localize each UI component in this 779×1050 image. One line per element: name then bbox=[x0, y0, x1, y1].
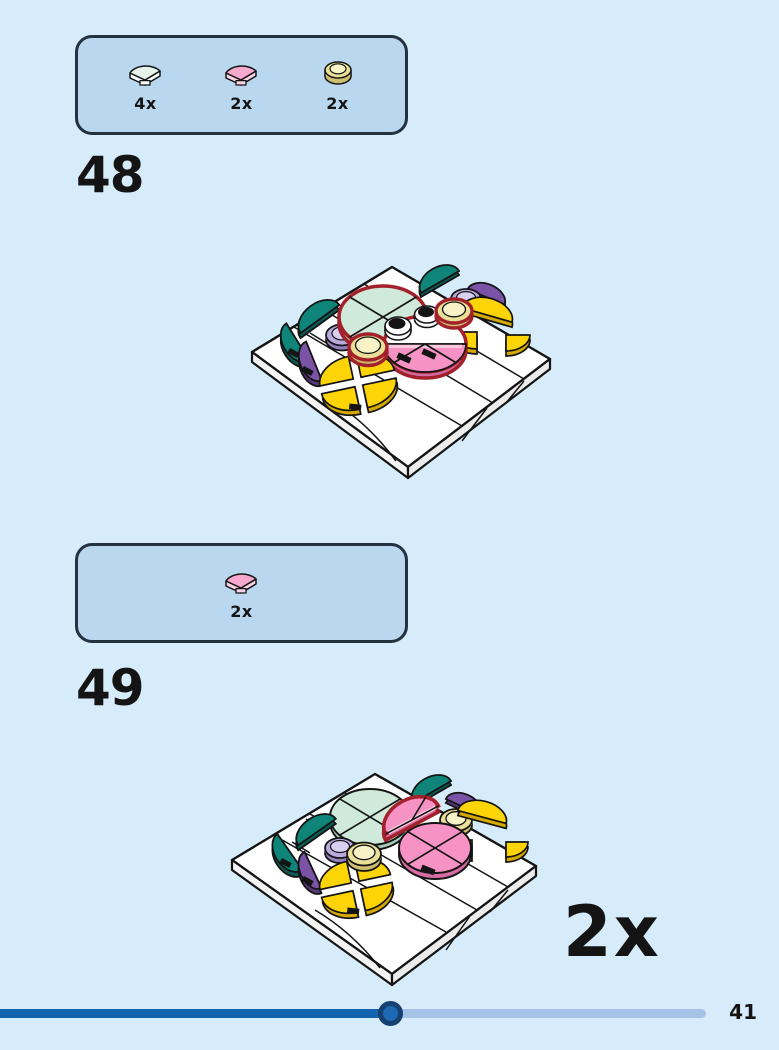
trans-yellow-round-tile-highlighted bbox=[349, 334, 387, 366]
page-number: 41 bbox=[729, 1000, 757, 1024]
part-quantity: 2x bbox=[326, 94, 348, 113]
step-49-parts-box: 2x bbox=[75, 543, 408, 643]
round-tile-yellow-icon bbox=[315, 57, 361, 93]
part-quarter-tile-pink: 2x bbox=[219, 565, 265, 621]
step-48-build-illustration bbox=[240, 255, 570, 485]
progress-bar-filled[interactable] bbox=[0, 1009, 386, 1018]
step-49-repeat-count: 2x bbox=[563, 897, 661, 967]
step-48-number: 48 bbox=[76, 150, 144, 200]
step-49-number: 49 bbox=[76, 663, 144, 713]
part-quantity: 2x bbox=[230, 94, 252, 113]
step-48-parts-box: 4x 2x 2x bbox=[75, 35, 408, 135]
trans-yellow-round-tile-highlighted bbox=[436, 299, 472, 328]
step-49-build-illustration bbox=[220, 760, 560, 990]
trans-yellow-round-tile bbox=[347, 843, 381, 872]
quarter-tile-pink-icon bbox=[219, 565, 265, 601]
part-round-tile-yellow: 2x bbox=[315, 57, 361, 113]
eye-round-tile bbox=[385, 317, 411, 340]
quarter-tile-aqua-icon bbox=[123, 57, 169, 93]
teal-quarter-tile bbox=[413, 258, 459, 297]
part-quarter-tile-aqua: 4x bbox=[123, 57, 169, 113]
part-quarter-tile-pink: 2x bbox=[219, 57, 265, 113]
part-quantity: 2x bbox=[230, 602, 252, 621]
progress-slider-handle[interactable] bbox=[378, 1001, 403, 1026]
quarter-tile-pink-icon bbox=[219, 57, 265, 93]
part-quantity: 4x bbox=[134, 94, 156, 113]
progress-bar-remaining[interactable] bbox=[386, 1009, 706, 1018]
pink-circle-tiles bbox=[399, 823, 471, 879]
